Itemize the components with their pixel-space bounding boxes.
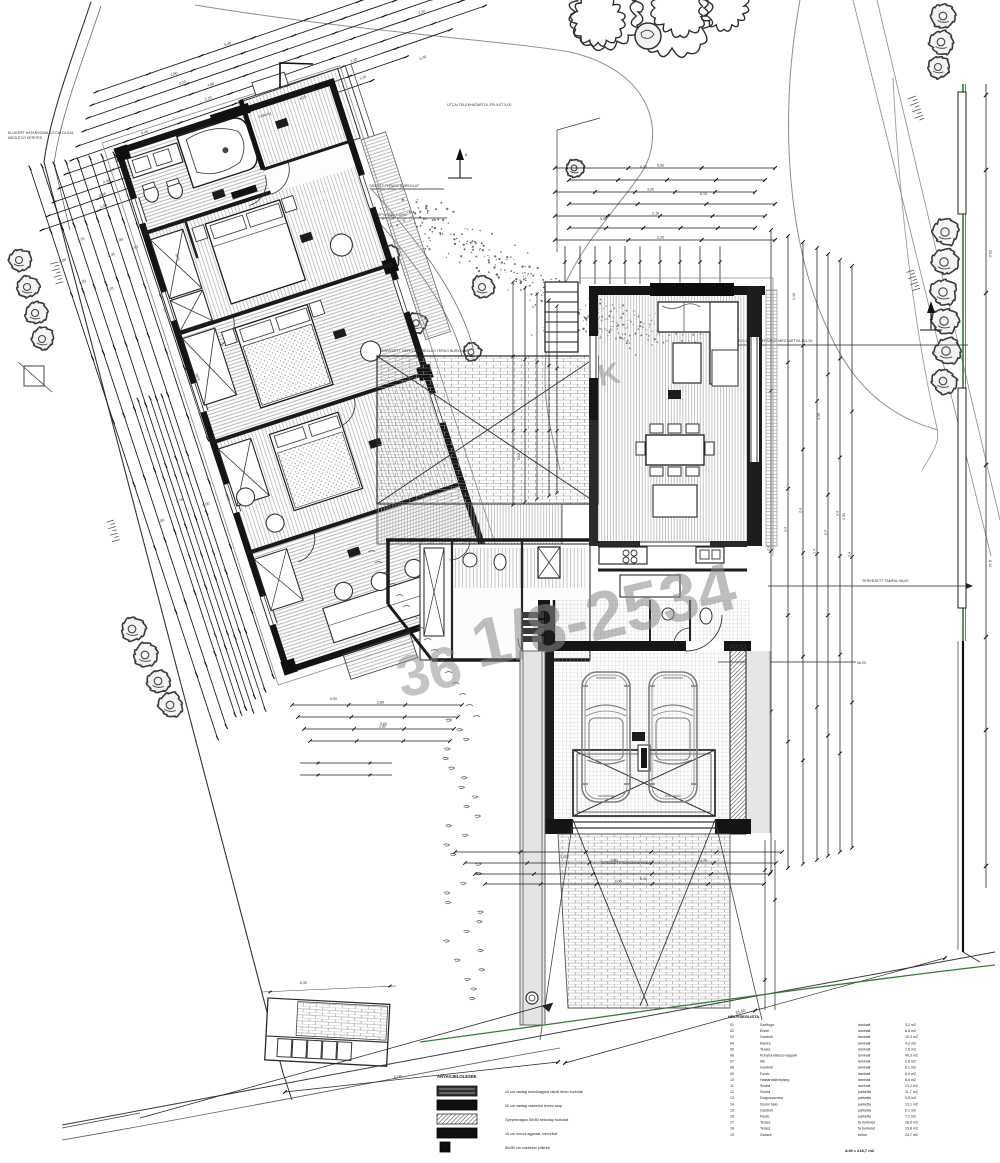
svg-text:Konyha-etkezo-nappali: Konyha-etkezo-nappali — [760, 1054, 797, 1058]
svg-text:6,40: 6,40 — [640, 877, 647, 881]
svg-text:9,8 m2: 9,8 m2 — [905, 1096, 916, 1100]
svg-text:2,4: 2,4 — [813, 549, 817, 554]
svg-text:6,1 m2: 6,1 m2 — [905, 1108, 916, 1112]
svg-text:13,8 m2: 13,8 m2 — [905, 1127, 918, 1131]
svg-text:Dolgozoszoba: Dolgozoszoba — [760, 1096, 783, 1100]
svg-text:19: 19 — [730, 1133, 734, 1137]
svg-text:6,30: 6,30 — [300, 981, 307, 985]
svg-text:14: 14 — [730, 1102, 734, 1106]
svg-text:Furdo: Furdo — [760, 1115, 769, 1119]
svg-text:TERVEZETT TAMFAL 98,60: TERVEZETT TAMFAL 98,60 — [862, 579, 909, 583]
svg-text:98,20: 98,20 — [857, 661, 866, 665]
svg-text:laminalt: laminalt — [858, 1072, 870, 1076]
svg-text:03: 03 — [730, 1035, 734, 1039]
svg-text:10: 10 — [730, 1078, 734, 1082]
svg-text:Furdo: Furdo — [760, 1072, 769, 1076]
svg-text:50x50 cm vasbeton pillerek: 50x50 cm vasbeton pillerek — [505, 1146, 550, 1150]
svg-text:2,4: 2,4 — [848, 552, 852, 557]
svg-text:Terasz: Terasz — [760, 1047, 771, 1051]
svg-text:16: 16 — [730, 1115, 734, 1119]
svg-text:fa burkolat: fa burkolat — [858, 1121, 875, 1125]
svg-text:parketta: parketta — [858, 1115, 871, 1119]
svg-text:HELYISEGLISTA: HELYISEGLISTA — [728, 1014, 759, 1019]
svg-text:10,4 m2: 10,4 m2 — [905, 1035, 918, 1039]
svg-text:Szoba: Szoba — [760, 1090, 770, 1094]
svg-text:parketta: parketta — [858, 1090, 871, 1094]
svg-text:49,3 m2: 49,3 m2 — [905, 1054, 918, 1058]
svg-text:6,8 m2: 6,8 m2 — [905, 1029, 916, 1033]
svg-text:laminalt: laminalt — [858, 1023, 870, 1027]
svg-text:09: 09 — [730, 1072, 734, 1076]
svg-text:laminalt: laminalt — [858, 1078, 870, 1082]
svg-text:laminalt: laminalt — [858, 1041, 870, 1045]
svg-text:5,60: 5,60 — [380, 722, 387, 726]
svg-text:1,10: 1,10 — [792, 293, 796, 300]
svg-text:2,50: 2,50 — [477, 523, 481, 530]
svg-text:Kamra: Kamra — [760, 1041, 771, 1045]
svg-text:07: 07 — [730, 1060, 734, 1064]
svg-text:Gardrob: Gardrob — [760, 1066, 773, 1070]
svg-text:A:M = 218,7 m2: A:M = 218,7 m2 — [845, 1148, 875, 1153]
svg-text:Garazs: Garazs — [760, 1133, 772, 1137]
svg-text:parketta: parketta — [858, 1108, 871, 1112]
svg-text:08: 08 — [730, 1066, 734, 1070]
svg-text:5,90: 5,90 — [330, 697, 337, 701]
svg-text:TERVEZETT GEPKOCSI BEALLO TERK: TERVEZETT GEPKOCSI BEALLO TERKO BURKOLAT — [380, 349, 470, 353]
svg-text:8,10: 8,10 — [988, 560, 992, 567]
svg-text:Haztartasihelyiseg: Haztartasihelyiseg — [760, 1078, 789, 1082]
svg-text:2,4: 2,4 — [836, 511, 840, 516]
svg-text:laminalt: laminalt — [858, 1029, 870, 1033]
svg-text:UTCAI TELEKHATARTOL EPULET 5,0: UTCAI TELEKHATARTOL EPULET 5,00 — [447, 103, 511, 107]
svg-text:11: 11 — [730, 1084, 734, 1088]
svg-text:Szoba: Szoba — [760, 1084, 770, 1088]
svg-text:laminalt: laminalt — [858, 1035, 870, 1039]
svg-text:6,10: 6,10 — [700, 192, 707, 196]
svg-text:3,00: 3,00 — [560, 855, 567, 859]
svg-text:Szelfogo: Szelfogo — [760, 1023, 774, 1027]
svg-text:2,4: 2,4 — [799, 508, 803, 513]
svg-text:6,00: 6,00 — [394, 1074, 403, 1080]
svg-text:4,30: 4,30 — [817, 413, 821, 420]
svg-text:5,50: 5,50 — [600, 217, 607, 221]
svg-text:3,00: 3,00 — [615, 880, 622, 884]
svg-text:25,0: 25,0 — [988, 250, 992, 257]
svg-text:1,50: 1,50 — [842, 513, 846, 520]
svg-text:Gardrob: Gardrob — [760, 1108, 773, 1112]
svg-text:6,9 m2: 6,9 m2 — [905, 1072, 916, 1076]
svg-text:parketta: parketta — [858, 1096, 871, 1100]
svg-text:13: 13 — [730, 1096, 734, 1100]
svg-text:01: 01 — [730, 1023, 734, 1027]
svg-text:laminalt: laminalt — [858, 1047, 870, 1051]
svg-text:Eloter: Eloter — [760, 1029, 770, 1033]
svg-text:8,6 m2: 8,6 m2 — [905, 1078, 916, 1082]
svg-text:06: 06 — [730, 1054, 734, 1058]
svg-text:3,00: 3,00 — [611, 859, 618, 863]
svg-text:4,70: 4,70 — [700, 859, 707, 863]
svg-text:2,6 m2: 2,6 m2 — [905, 1060, 916, 1064]
svg-text:parketta: parketta — [858, 1102, 871, 1106]
svg-text:ANYAGJELOLESEK: ANYAGJELOLESEK — [437, 1074, 477, 1079]
svg-text:3,20: 3,20 — [647, 188, 654, 192]
svg-text:2,4: 2,4 — [784, 527, 788, 532]
svg-text:Gyephezagos 50x50 betonlap bur: Gyephezagos 50x50 betonlap burkolat — [505, 1118, 568, 1122]
svg-text:2,4: 2,4 — [767, 546, 771, 551]
svg-text:4,2 m2: 4,2 m2 — [905, 1041, 916, 1045]
svg-text:laminalt: laminalt — [858, 1084, 870, 1088]
svg-text:7,6 m2: 7,6 m2 — [905, 1047, 916, 1051]
svg-text:11,7 m2: 11,7 m2 — [905, 1090, 918, 1094]
svg-text:Terasz: Terasz — [760, 1127, 771, 1131]
svg-text:ELOKERT HATARVONAL UTCAI OLDAL: ELOKERT HATARVONAL UTCAI OLDAL — [8, 131, 74, 135]
svg-text:1,20: 1,20 — [657, 236, 664, 240]
svg-text:05: 05 — [730, 1047, 734, 1051]
svg-text:24,7 m2: 24,7 m2 — [905, 1133, 918, 1137]
svg-text:Terasz: Terasz — [760, 1121, 771, 1125]
svg-text:MEGLEVO KERITES: MEGLEVO KERITES — [8, 136, 43, 140]
svg-text:12: 12 — [730, 1090, 734, 1094]
svg-text:laminalt: laminalt — [858, 1054, 870, 1058]
svg-text:15: 15 — [730, 1108, 734, 1112]
svg-text:Wc: Wc — [760, 1060, 765, 1064]
svg-text:02: 02 — [730, 1029, 734, 1033]
svg-text:7,2 m2: 7,2 m2 — [905, 1115, 916, 1119]
svg-text:5,60: 5,60 — [517, 453, 521, 460]
svg-text:20 cm vastag vasbeton lemez al: 20 cm vastag vasbeton lemez alap — [505, 1104, 562, 1108]
svg-text:beton: beton — [858, 1133, 867, 1137]
svg-text:17: 17 — [730, 1121, 734, 1125]
svg-text:laminalt: laminalt — [858, 1066, 870, 1070]
svg-text:Gardrob: Gardrob — [760, 1035, 773, 1039]
svg-text:2,80: 2,80 — [377, 701, 384, 705]
svg-text:6,1 m2: 6,1 m2 — [905, 1066, 916, 1070]
svg-text:laminalt: laminalt — [858, 1060, 870, 1064]
svg-text:10 cm vastag homokagyba rakott: 10 cm vastag homokagyba rakott terko bur… — [505, 1090, 583, 1094]
svg-text:18: 18 — [730, 1127, 734, 1131]
svg-text:18,0 m2: 18,0 m2 — [905, 1121, 918, 1125]
svg-text:04: 04 — [730, 1041, 734, 1045]
svg-text:5,00: 5,00 — [657, 164, 664, 168]
svg-text:13,1 m2: 13,1 m2 — [905, 1102, 918, 1106]
svg-text:6,20: 6,20 — [640, 165, 647, 169]
svg-text:3,2 m2: 3,2 m2 — [905, 1023, 916, 1027]
svg-text:2,4: 2,4 — [824, 530, 828, 535]
svg-text:Szuloi halo: Szuloi halo — [760, 1102, 778, 1106]
svg-text:fa burkolat: fa burkolat — [858, 1127, 875, 1131]
svg-text:2,10: 2,10 — [652, 212, 659, 216]
svg-text:15 cm murva agyazat, tomoritve: 15 cm murva agyazat, tomoritve — [505, 1132, 557, 1136]
svg-text:13,2 m2: 13,2 m2 — [905, 1084, 918, 1088]
